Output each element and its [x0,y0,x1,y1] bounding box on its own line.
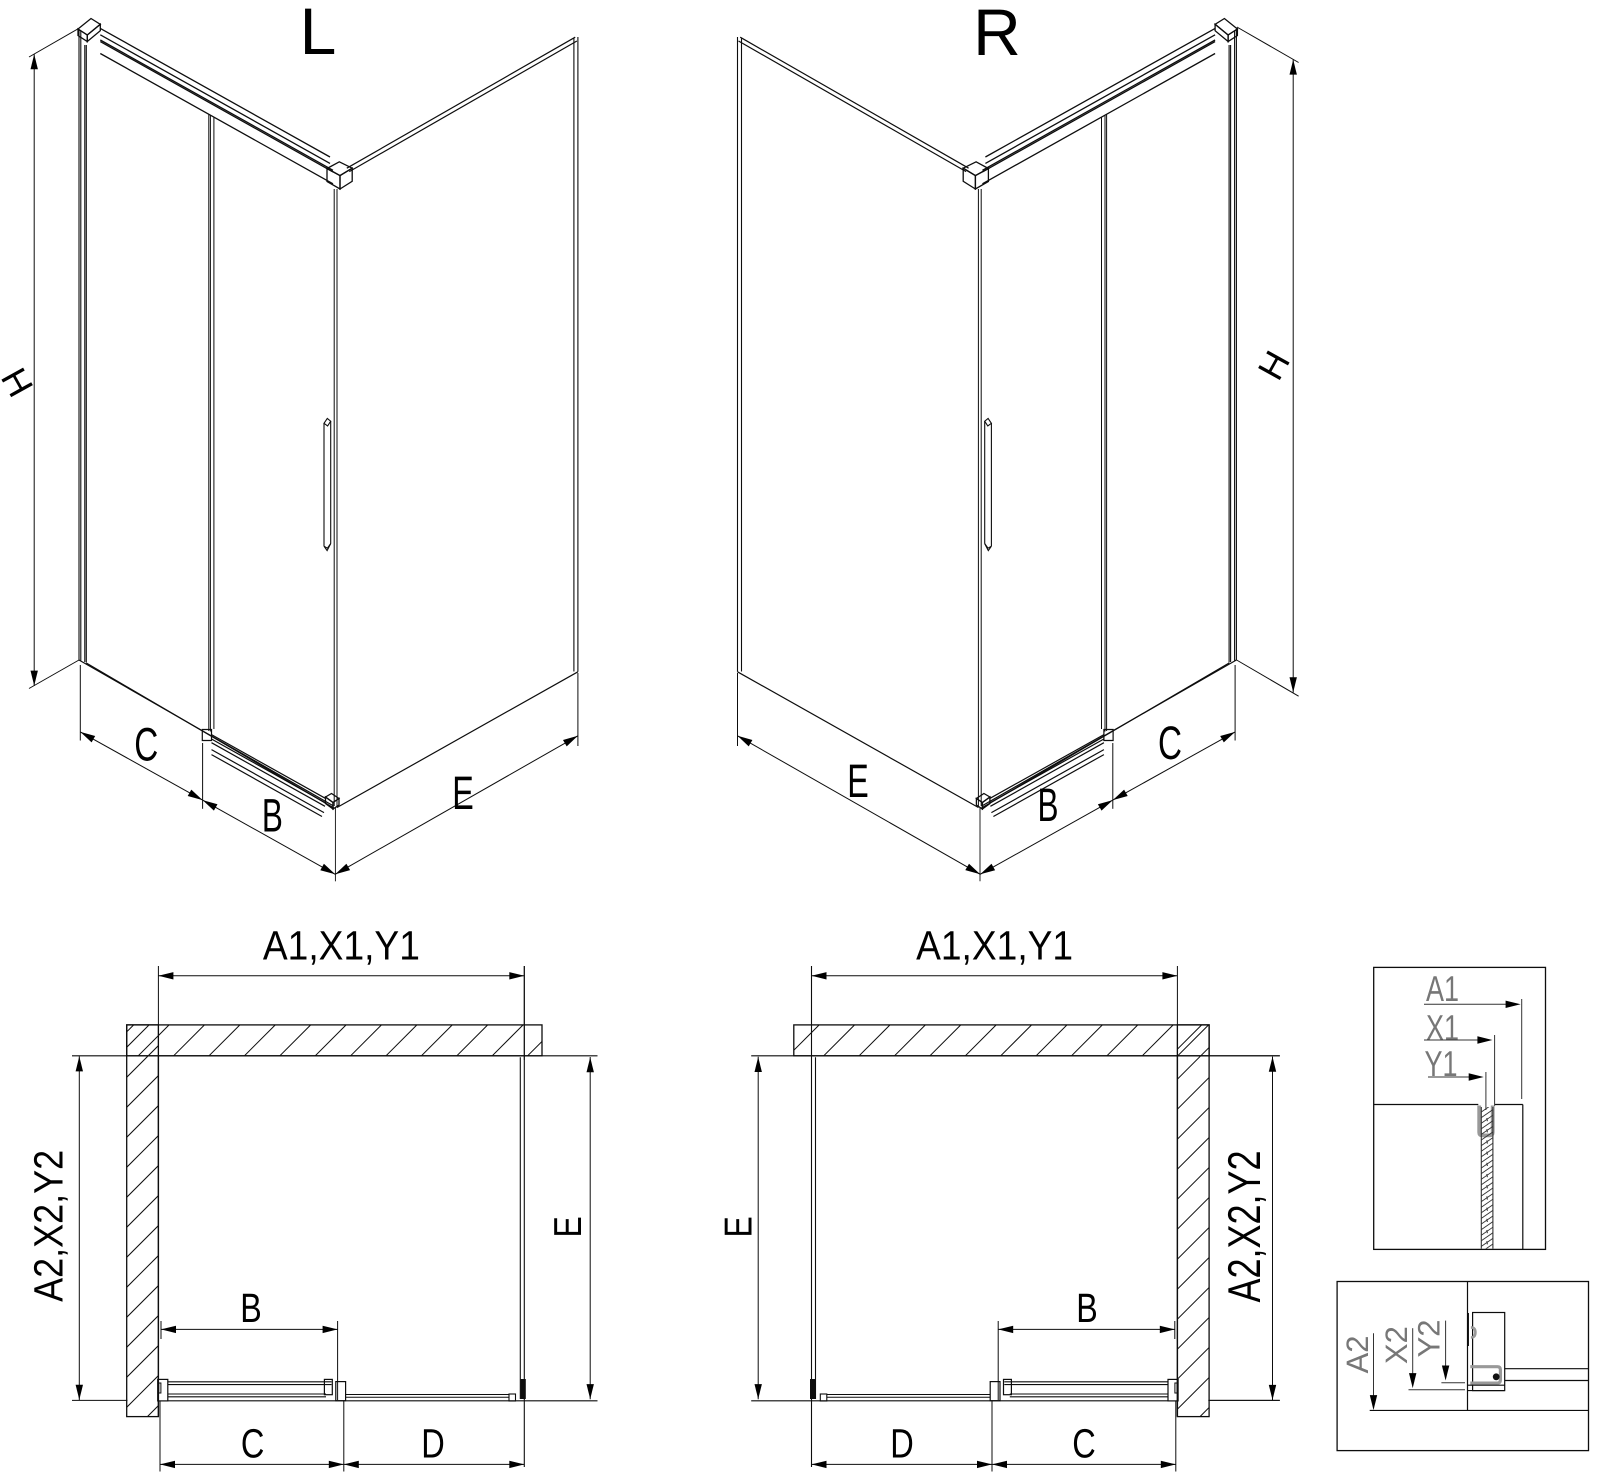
svg-text:X1: X1 [1426,1007,1459,1048]
svg-text:Y2: Y2 [1412,1319,1447,1357]
svg-text:D: D [890,1421,914,1467]
svg-text:B: B [262,788,283,841]
svg-text:D: D [421,1421,445,1467]
svg-text:A2,X2,Y2: A2,X2,Y2 [1218,1151,1270,1303]
svg-text:E: E [547,1216,590,1237]
svg-text:A1,X1,Y1: A1,X1,Y1 [916,923,1073,969]
svg-text:C: C [1072,1421,1096,1467]
svg-text:A2,X2,Y2: A2,X2,Y2 [25,1150,71,1302]
svg-text:B: B [240,1285,262,1331]
svg-text:C: C [241,1421,265,1467]
svg-text:A1: A1 [1426,968,1459,1009]
svg-text:B: B [1076,1285,1098,1331]
svg-text:L: L [300,0,337,68]
svg-text:E: E [847,754,869,807]
svg-text:H: H [0,361,41,404]
svg-text:C: C [1158,716,1182,769]
svg-text:E: E [452,766,474,819]
svg-text:A2: A2 [1340,1335,1375,1373]
svg-text:C: C [134,717,158,770]
svg-text:A1,X1,Y1: A1,X1,Y1 [263,923,420,969]
svg-text:E: E [717,1216,760,1237]
svg-text:Y1: Y1 [1425,1043,1458,1084]
svg-text:X2: X2 [1379,1326,1414,1364]
svg-text:H: H [1250,344,1298,387]
svg-text:R: R [973,0,1021,69]
svg-text:B: B [1038,778,1059,831]
